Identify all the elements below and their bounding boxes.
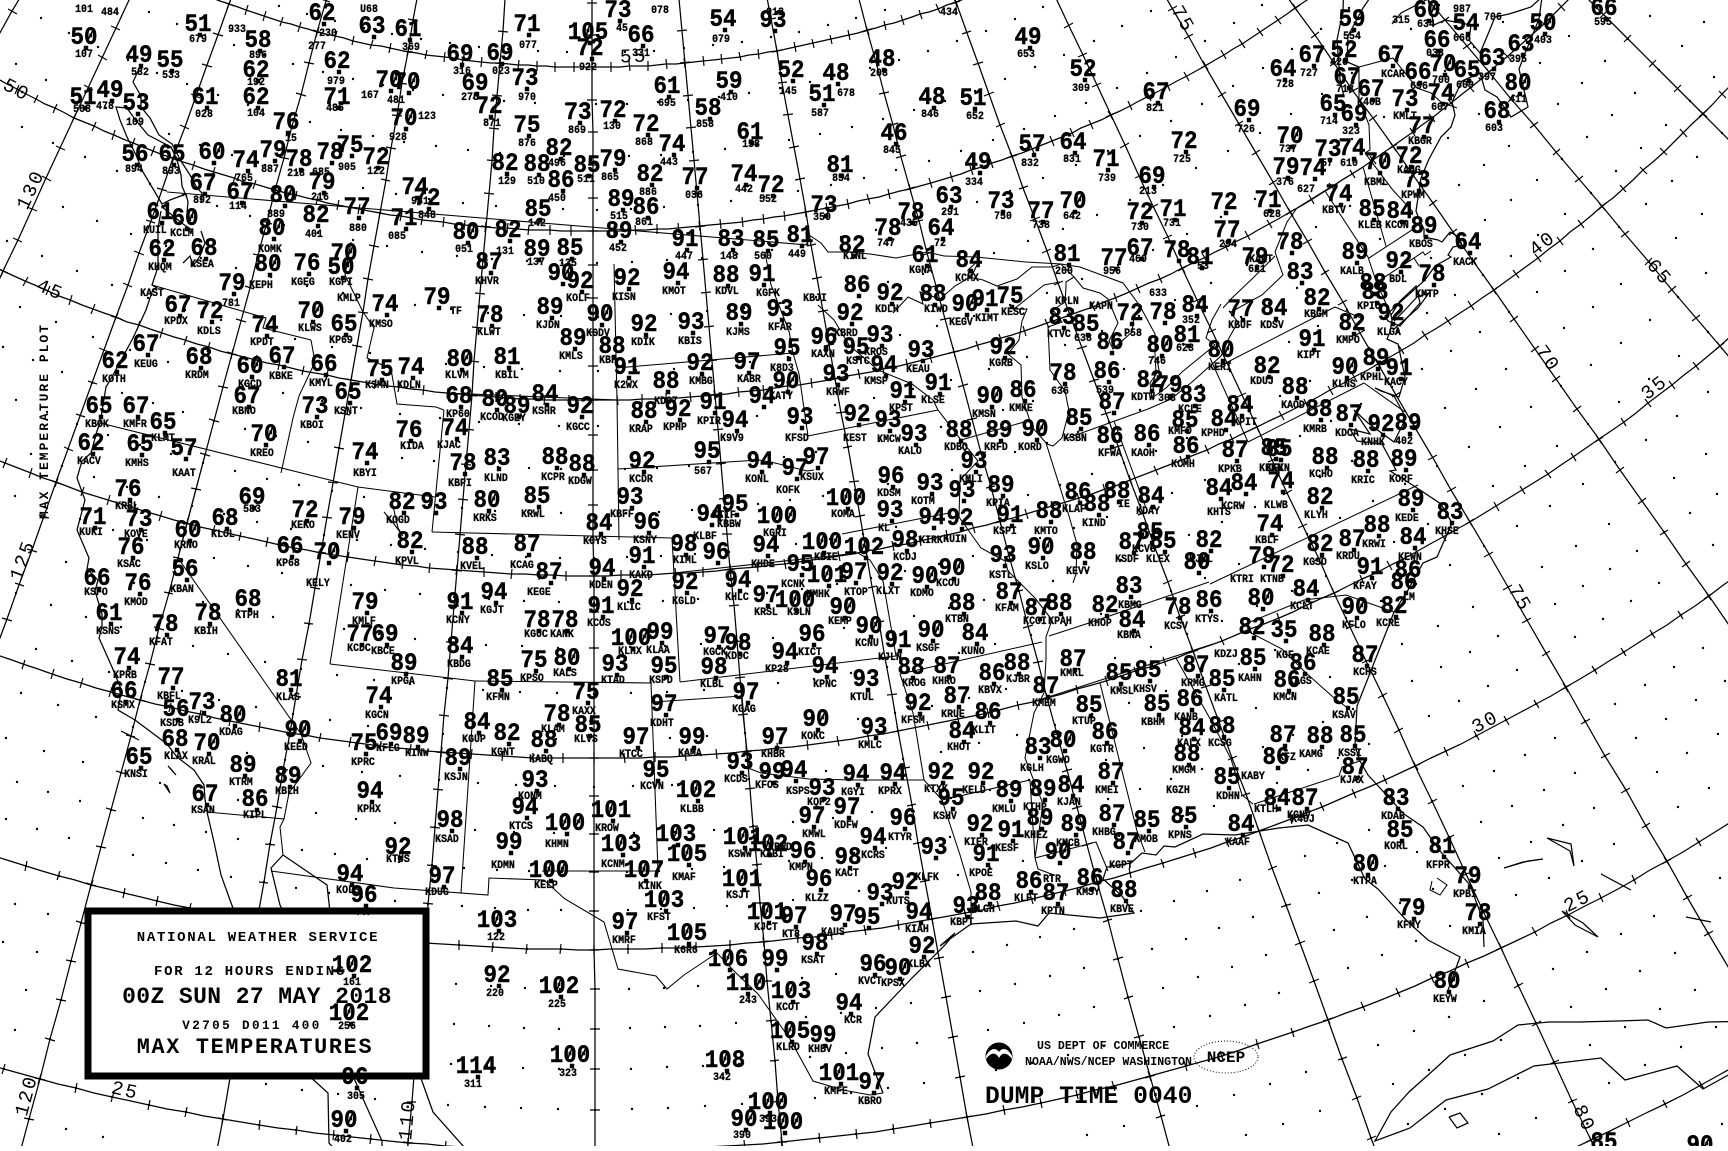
svg-text:FOR 12 HOURS ENDING: FOR 12 HOURS ENDING — [154, 964, 346, 980]
svg-text:KEAU: KEAU — [906, 364, 930, 376]
svg-text:KCMX: KCMX — [955, 273, 979, 285]
svg-text:KEGE: KEGE — [527, 587, 551, 599]
svg-text:560: 560 — [754, 251, 772, 263]
svg-text:478: 478 — [96, 101, 114, 113]
svg-text:KDVL: KDVL — [715, 286, 739, 298]
svg-text:KIAH: KIAH — [905, 924, 929, 936]
svg-text:KCYS: KCYS — [583, 536, 607, 548]
svg-text:342: 342 — [713, 1072, 731, 1084]
svg-text:846: 846 — [921, 109, 939, 121]
svg-text:KT8: KT8 — [782, 929, 800, 941]
svg-text:KDBQ: KDBQ — [944, 442, 968, 454]
svg-text:KELY: KELY — [306, 578, 330, 590]
svg-text:434: 434 — [940, 7, 958, 19]
svg-text:KGNT: KGNT — [491, 747, 515, 759]
svg-text:KGCN: KGCN — [365, 710, 389, 722]
svg-text:KEYW: KEYW — [1433, 994, 1457, 1006]
svg-text:KSTL: KSTL — [989, 570, 1013, 582]
svg-text:107: 107 — [75, 49, 93, 61]
svg-text:122: 122 — [487, 932, 505, 944]
svg-text:KBOK: KBOK — [85, 419, 109, 431]
svg-text:KSSI: KSSI — [1338, 748, 1362, 760]
svg-text:KHVR: KHVR — [475, 276, 499, 288]
svg-text:KRUE: KRUE — [941, 709, 965, 721]
svg-text:KJDN: KJDN — [536, 320, 560, 332]
svg-text:583: 583 — [243, 504, 261, 516]
svg-text:KBIE: KBIE — [814, 552, 838, 564]
svg-text:KSFO: KSFO — [84, 587, 108, 599]
svg-text:443: 443 — [660, 157, 678, 169]
svg-text:K6R6: K6R6 — [674, 945, 698, 957]
svg-text:KMFD: KMFD — [1168, 426, 1192, 438]
svg-text:KCRS: KCRS — [861, 850, 885, 862]
svg-text:397: 397 — [1478, 72, 1496, 84]
svg-text:KPSO: KPSO — [520, 673, 544, 685]
svg-text:KLHX: KLHX — [618, 646, 642, 658]
svg-text:277: 277 — [308, 41, 326, 53]
svg-text:KHOP: KHOP — [1088, 618, 1112, 630]
svg-text:KSMX: KSMX — [111, 700, 135, 712]
svg-text:KCRE: KCRE — [1376, 618, 1400, 630]
svg-text:KAMG: KAMG — [1299, 749, 1323, 761]
svg-text:552: 552 — [759, 194, 777, 206]
svg-text:496: 496 — [548, 158, 566, 170]
svg-text:KSLN: KSLN — [787, 607, 811, 619]
svg-text:KMHS: KMHS — [125, 458, 149, 470]
svg-text:KENV: KENV — [336, 530, 360, 542]
svg-text:KBDG: KBDG — [447, 659, 471, 671]
svg-text:KEWN: KEWN — [1398, 552, 1422, 564]
svg-text:KBMG: KBMG — [1118, 600, 1142, 612]
svg-text:KGJT: KGJT — [480, 605, 504, 617]
svg-text:KFLG: KFLG — [376, 743, 400, 755]
svg-text:KAOD: KAOD — [1281, 400, 1305, 412]
svg-text:KLYH: KLYH — [1304, 510, 1328, 522]
svg-text:831: 831 — [1063, 154, 1081, 166]
svg-text:KPDX: KPDX — [164, 316, 188, 328]
svg-text:K2WX: K2WX — [614, 380, 638, 392]
svg-text:KRAL: KRAL — [192, 756, 216, 768]
svg-text:568: 568 — [73, 104, 91, 116]
svg-text:KBKE: KBKE — [269, 371, 293, 383]
svg-text:KBRD: KBRD — [834, 328, 858, 340]
svg-text:603: 603 — [1485, 123, 1503, 135]
svg-text:KTUS: KTUS — [386, 854, 410, 866]
svg-text:KMLT: KMLT — [1393, 111, 1417, 123]
svg-text:KLBX: KLBX — [907, 959, 931, 971]
svg-text:KHEZ: KHEZ — [1024, 830, 1048, 842]
svg-text:KL: KL — [878, 523, 890, 535]
svg-text:KIMT: KIMT — [975, 313, 999, 325]
svg-text:KFLO: KFLO — [1342, 620, 1366, 632]
svg-text:KDHN: KDHN — [1216, 791, 1240, 803]
svg-text:KIWD: KIWD — [924, 304, 948, 316]
svg-text:079: 079 — [712, 34, 730, 46]
svg-text:725: 725 — [1173, 154, 1191, 166]
svg-text:K9V9: K9V9 — [720, 433, 744, 445]
svg-text:KBOS: KBOS — [1409, 239, 1433, 251]
svg-text:765: 765 — [235, 173, 253, 185]
svg-text:KLEX: KLEX — [1146, 554, 1170, 566]
svg-text:KBFF: KBFF — [610, 509, 634, 521]
svg-text:161: 161 — [343, 977, 361, 989]
svg-text:KAAT: KAAT — [172, 468, 196, 480]
svg-text:KSNS: KSNS — [96, 626, 120, 638]
svg-text:KSAV: KSAV — [1332, 710, 1356, 722]
svg-text:KSNY: KSNY — [633, 535, 657, 547]
svg-text:KCVN: KCVN — [640, 781, 664, 793]
svg-text:KJAC: KJAC — [437, 440, 461, 452]
svg-text:TF: TF — [450, 306, 462, 318]
svg-text:700: 700 — [1432, 75, 1450, 87]
svg-text:KICT: KICT — [798, 647, 822, 659]
svg-text:KIDA: KIDA — [400, 441, 424, 453]
svg-text:KGTR: KGTR — [1090, 744, 1114, 756]
svg-text:260: 260 — [1055, 266, 1073, 278]
svg-text:KBNA: KBNA — [1117, 630, 1141, 642]
svg-text:KMEI: KMEI — [1095, 785, 1119, 797]
svg-text:KBVX: KBVX — [978, 685, 1002, 697]
svg-text:KDTW: KDTW — [1131, 392, 1155, 404]
svg-text:449: 449 — [788, 249, 806, 261]
svg-text:KTNB: KTNB — [1260, 574, 1284, 586]
svg-text:894: 894 — [125, 164, 143, 176]
svg-text:KREO: KREO — [250, 448, 274, 460]
svg-text:450: 450 — [548, 193, 566, 205]
svg-text:KBTV: KBTV — [1322, 205, 1346, 217]
svg-text:KMLP: KMLP — [337, 293, 361, 305]
svg-text:KRAP: KRAP — [629, 424, 653, 436]
svg-text:303: 303 — [1158, 393, 1176, 405]
svg-text:607: 607 — [1431, 102, 1449, 114]
svg-text:KHMN: KHMN — [545, 839, 569, 851]
svg-text:447: 447 — [354, 907, 372, 919]
svg-text:KD07: KD07 — [654, 396, 678, 408]
svg-text:KGNA: KGNA — [909, 265, 933, 277]
svg-text:KBH: KBH — [599, 355, 617, 367]
svg-text:KPHX: KPHX — [357, 804, 381, 816]
svg-text:KACT: KACT — [835, 868, 859, 880]
svg-text:078: 078 — [651, 5, 669, 17]
svg-text:KCDS: KCDS — [724, 774, 748, 786]
svg-text:KGWO: KGWO — [1046, 755, 1070, 767]
svg-text:KGLH: KGLH — [1020, 763, 1044, 775]
svg-text:53: 53 — [1197, 261, 1209, 273]
svg-text:KHTS: KHTS — [1207, 507, 1231, 519]
svg-text:KTUL: KTUL — [850, 692, 874, 704]
svg-text:KELP: KELP — [534, 880, 558, 892]
svg-text:KSMN: KSMN — [365, 380, 389, 392]
svg-text:051: 051 — [455, 244, 473, 256]
svg-text:KINL: KINL — [843, 251, 867, 263]
svg-text:987: 987 — [1453, 4, 1471, 16]
svg-text:750: 750 — [994, 211, 1012, 223]
svg-text:876: 876 — [518, 138, 536, 150]
svg-text:KLOL: KLOL — [211, 529, 235, 541]
svg-text:230: 230 — [319, 28, 337, 40]
svg-text:KFZ: KFZ — [1278, 752, 1296, 764]
svg-text:KRBL: KRBL — [115, 501, 139, 513]
svg-text:KAKO: KAKO — [629, 570, 653, 582]
svg-text:KMRF: KMRF — [612, 935, 636, 947]
svg-text:57: 57 — [1321, 158, 1333, 170]
svg-text:739: 739 — [1098, 173, 1116, 185]
svg-text:DUMP TIME 0040: DUMP TIME 0040 — [985, 1083, 1192, 1111]
svg-text:KCAE: KCAE — [1306, 646, 1330, 658]
svg-text:KRMG: KRMG — [1181, 678, 1205, 690]
svg-text:KATL: KATL — [1214, 693, 1238, 705]
svg-text:KROS: KROS — [864, 347, 888, 359]
svg-text:KDUG: KDUG — [425, 887, 449, 899]
svg-text:KELD: KELD — [962, 785, 986, 797]
svg-text:KMLI: KMLI — [959, 474, 983, 486]
svg-text:KPVL: KPVL — [395, 556, 419, 568]
svg-text:KANB: KANB — [1174, 712, 1198, 724]
svg-text:122: 122 — [367, 166, 385, 178]
svg-text:K9L2: K9L2 — [188, 715, 212, 727]
svg-text:KMSO: KMSO — [369, 319, 393, 331]
svg-text:510: 510 — [527, 176, 545, 188]
svg-text:KNSI: KNSI — [124, 769, 148, 781]
svg-text:KATY: KATY — [769, 391, 793, 403]
svg-text:KMWL: KMWL — [802, 829, 826, 841]
svg-text:393: 393 — [759, 1114, 777, 1126]
svg-text:410: 410 — [720, 92, 738, 104]
svg-text:KACY: KACY — [1384, 377, 1408, 389]
svg-text:KMOB: KMOB — [1134, 834, 1158, 846]
svg-text:KMLU: KMLU — [992, 804, 1016, 816]
svg-text:KIPT: KIPT — [1297, 350, 1321, 362]
svg-text:MAX TEMPERATURES: MAX TEMPERATURES — [137, 1035, 373, 1060]
svg-text:KHDE: KHDE — [751, 559, 775, 571]
svg-text:KIPL: KIPL — [243, 810, 267, 822]
svg-text:970: 970 — [518, 92, 536, 104]
svg-text:KMAF: KMAF — [672, 872, 696, 884]
svg-text:587: 587 — [811, 108, 829, 120]
svg-text:KJCT: KJCT — [754, 922, 778, 934]
svg-text:633: 633 — [1149, 288, 1167, 300]
svg-text:KLBL: KLBL — [700, 679, 724, 691]
svg-text:678: 678 — [837, 88, 855, 100]
svg-text:821: 821 — [1146, 103, 1164, 115]
svg-text:350: 350 — [813, 212, 831, 224]
svg-text:452: 452 — [609, 243, 627, 255]
svg-text:KCOD: KCOD — [480, 412, 504, 424]
svg-text:845: 845 — [883, 145, 901, 157]
svg-text:623: 623 — [1176, 343, 1194, 355]
svg-text:45: 45 — [616, 23, 628, 35]
svg-text:KMGM: KMGM — [1172, 765, 1196, 777]
svg-text:KMPN: KMPN — [789, 862, 813, 874]
svg-text:981: 981 — [411, 196, 429, 208]
svg-text:K8D3: K8D3 — [770, 363, 794, 375]
svg-text:KHBV: KHBV — [808, 1044, 832, 1056]
svg-text:928: 928 — [389, 132, 407, 144]
svg-text:781: 781 — [222, 298, 240, 310]
svg-text:KHQM: KHQM — [148, 262, 172, 274]
svg-text:KCLM: KCLM — [170, 228, 194, 240]
svg-text:401: 401 — [305, 229, 323, 241]
svg-text:85: 85 — [1591, 1129, 1618, 1146]
svg-text:KFSD: KFSD — [785, 433, 809, 445]
svg-text:KGF: KGF — [1276, 650, 1294, 662]
svg-text:KGRB: KGRB — [989, 358, 1013, 370]
svg-text:886: 886 — [639, 187, 657, 199]
svg-text:KLCH: KLCH — [971, 904, 995, 916]
svg-text:RTR: RTR — [1043, 874, 1062, 886]
svg-text:KANK: KANK — [550, 629, 574, 641]
svg-text:481: 481 — [387, 95, 405, 107]
svg-text:KMKE: KMKE — [1009, 403, 1033, 415]
svg-text:KROW: KROW — [595, 823, 619, 835]
svg-text:KSAD: KSAD — [435, 834, 459, 846]
svg-text:208: 208 — [870, 68, 888, 80]
svg-text:311: 311 — [464, 1079, 482, 1091]
svg-text:028: 028 — [195, 109, 213, 121]
svg-text:KFMY: KFMY — [1397, 920, 1421, 932]
svg-text:610: 610 — [1340, 158, 1358, 170]
svg-text:511: 511 — [577, 174, 595, 186]
svg-text:KLVM: KLVM — [445, 370, 469, 382]
svg-text:137: 137 — [527, 257, 545, 269]
svg-text:KALX: KALX — [1177, 738, 1201, 750]
svg-text:KTPH: KTPH — [235, 610, 259, 622]
svg-text:KRNO: KRNO — [174, 540, 198, 552]
svg-text:KCDC: KCDC — [347, 643, 371, 655]
svg-text:90: 90 — [1687, 1132, 1714, 1146]
svg-text:KRSL: KRSL — [754, 607, 778, 619]
svg-text:395: 395 — [1509, 54, 1527, 66]
svg-text:KTPA: KTPA — [1353, 876, 1377, 888]
svg-text:KBPI: KBPI — [448, 478, 472, 490]
svg-text:129: 129 — [498, 176, 516, 188]
svg-text:KJLN: KJLN — [878, 652, 902, 664]
svg-text:KTXK: KTXK — [924, 784, 948, 796]
svg-text:628: 628 — [1263, 209, 1281, 221]
svg-text:KP28: KP28 — [765, 664, 789, 676]
svg-text:714: 714 — [1320, 116, 1338, 128]
svg-text:KEST: KEST — [843, 433, 867, 445]
svg-text:KOVE: KOVE — [124, 529, 148, 541]
svg-text:KIER: KIER — [964, 837, 988, 849]
svg-text:KUTS: KUTS — [886, 896, 910, 908]
svg-text:KAAF: KAAF — [1226, 837, 1250, 849]
svg-text:KOMA: KOMA — [831, 509, 855, 521]
svg-text:KFPR: KFPR — [1426, 860, 1450, 872]
svg-text:706: 706 — [1484, 12, 1502, 24]
svg-text:KGAG: KGAG — [732, 704, 756, 716]
svg-text:515: 515 — [610, 211, 628, 223]
svg-text:KBCE: KBCE — [371, 646, 395, 658]
svg-text:747: 747 — [877, 238, 895, 250]
svg-text:158: 158 — [742, 139, 760, 151]
svg-text:KRIC: KRIC — [1351, 475, 1375, 487]
svg-text:KAUS: KAUS — [821, 927, 845, 939]
svg-text:KESF: KESF — [995, 843, 1019, 855]
svg-text:KTVC: KTVC — [1047, 329, 1071, 341]
svg-text:KBIS: KBIS — [678, 336, 702, 348]
svg-text:KBLH: KBLH — [275, 786, 299, 798]
svg-text:216: 216 — [311, 192, 329, 204]
svg-text:KMSY: KMSY — [1076, 887, 1100, 899]
svg-text:KGPI: KGPI — [329, 277, 353, 289]
svg-text:218: 218 — [287, 168, 305, 180]
svg-text:145: 145 — [779, 86, 797, 98]
svg-text:426: 426 — [1330, 57, 1348, 69]
svg-text:15: 15 — [285, 133, 297, 145]
svg-text:K40J: K40J — [1291, 814, 1315, 826]
svg-text:KLXT: KLXT — [876, 586, 900, 598]
svg-text:IE: IE — [1118, 499, 1130, 511]
svg-text:402: 402 — [1395, 436, 1413, 448]
svg-text:554: 554 — [1343, 31, 1361, 43]
svg-text:KHRO: KHRO — [932, 676, 956, 688]
svg-text:KLZZ: KLZZ — [805, 893, 829, 905]
svg-text:KDMN: KDMN — [491, 860, 515, 872]
svg-text:KPOE: KPOE — [969, 868, 993, 880]
svg-text:KACV: KACV — [77, 456, 101, 468]
svg-text:109: 109 — [126, 117, 144, 129]
svg-text:KPSX: KPSX — [881, 978, 905, 990]
svg-text:727: 727 — [1300, 68, 1318, 80]
svg-text:KBRO: KBRO — [858, 1096, 882, 1108]
svg-text:KGUP: KGUP — [462, 734, 486, 746]
svg-text:KUIL: KUIL — [143, 225, 167, 237]
svg-text:858: 858 — [696, 119, 714, 131]
svg-text:KALB: KALB — [1340, 266, 1364, 278]
svg-text:KCPR: KCPR — [541, 472, 565, 484]
svg-text:KCOU: KCOU — [936, 578, 960, 590]
svg-text:KLWB: KLWB — [1264, 500, 1288, 512]
svg-text:KBIH: KBIH — [194, 626, 218, 638]
svg-text:KPRC: KPRC — [351, 757, 375, 769]
svg-text:KAGS: KAGS — [1288, 676, 1312, 688]
svg-text:KSPI: KSPI — [993, 526, 1017, 538]
svg-text:KINW: KINW — [405, 748, 429, 760]
svg-text:KMYL: KMYL — [309, 378, 333, 390]
svg-text:889: 889 — [267, 209, 285, 221]
svg-text:KCGI: KCGI — [1023, 616, 1047, 628]
svg-text:KPRB: KPRB — [113, 670, 137, 682]
svg-text:KBWD: KBWD — [768, 842, 792, 854]
svg-text:KCLT: KCLT — [1290, 601, 1314, 613]
svg-text:402: 402 — [334, 1134, 352, 1146]
svg-text:KABY: KABY — [1241, 771, 1265, 783]
svg-text:KIND: KIND — [1082, 518, 1106, 530]
svg-text:085: 085 — [388, 231, 406, 243]
svg-text:922: 922 — [579, 62, 597, 74]
svg-text:KTYR: KTYR — [888, 832, 912, 844]
svg-text:KSBN: KSBN — [1063, 433, 1087, 445]
svg-text:KLIC: KLIC — [617, 602, 641, 614]
svg-text:KMSN: KMSN — [972, 409, 996, 421]
svg-text:KSNT: KSNT — [334, 406, 358, 418]
svg-text:KPHD: KPHD — [1201, 428, 1225, 440]
svg-text:KVEL: KVEL — [460, 561, 484, 573]
svg-text:KONL: KONL — [745, 474, 769, 486]
svg-text:KAXN: KAXN — [811, 349, 835, 361]
svg-text:275: 275 — [461, 92, 479, 104]
svg-text:685: 685 — [312, 167, 330, 179]
svg-text:294: 294 — [1219, 239, 1237, 251]
svg-text:539: 539 — [1096, 385, 1114, 397]
svg-text:KTYS: KTYS — [1195, 614, 1219, 626]
svg-text:KSGF: KSGF — [916, 643, 940, 655]
svg-text:KNHK: KNHK — [1361, 437, 1385, 449]
svg-text:KGPT: KGPT — [1109, 860, 1133, 872]
svg-text:KVCT: KVCT — [858, 976, 882, 988]
svg-text:KP68: KP68 — [276, 558, 300, 570]
